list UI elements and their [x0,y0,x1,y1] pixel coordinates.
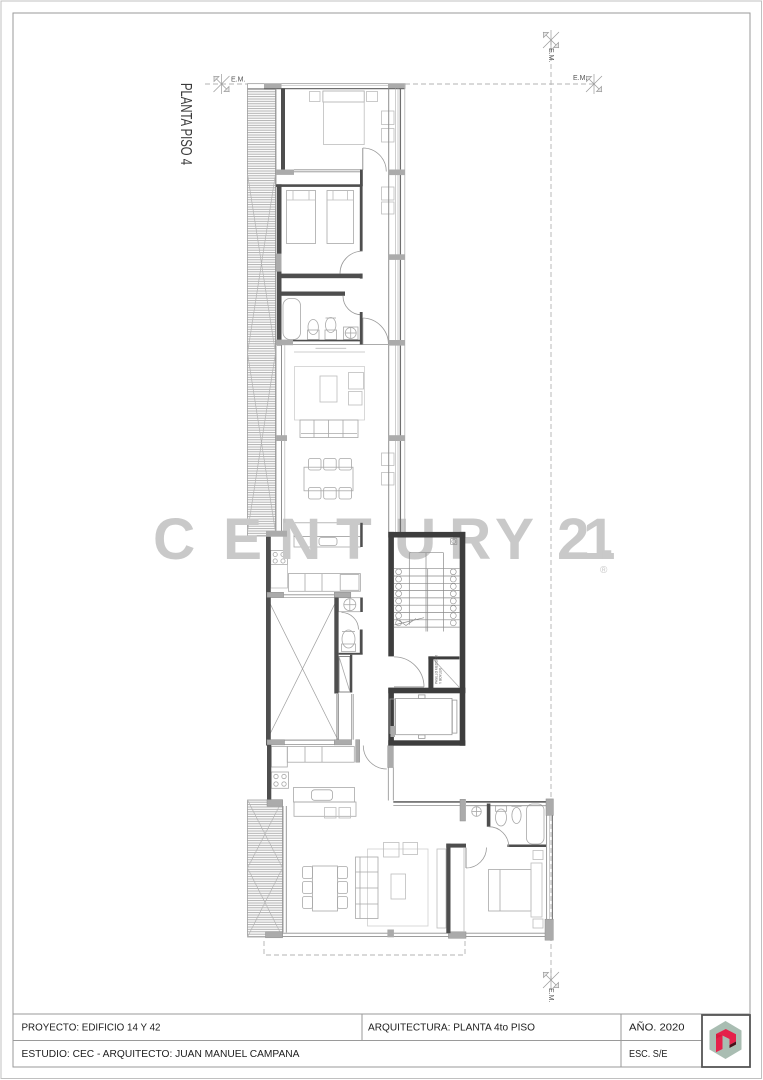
svg-text:E: E [223,507,262,572]
svg-text:PROYECTO: EDIFICIO 14 Y 42: PROYECTO: EDIFICIO 14 Y 42 [22,1022,161,1034]
svg-text:Y: Y [495,507,534,572]
svg-text:C: C [153,507,195,572]
svg-text:®: ® [600,565,608,576]
svg-text:N: N [279,507,321,572]
svg-text:ESTUDIO: CEC - ARQUITECTO: JUA: ESTUDIO: CEC - ARQUITECTO: JUAN MANUEL C… [22,1048,300,1060]
svg-text:.: . [599,507,615,572]
svg-text:PLANTA PISO 4: PLANTA PISO 4 [177,83,194,165]
svg-text:AÑO. 2020: AÑO. 2020 [629,1021,685,1034]
svg-text:E.M.: E.M. [547,988,554,1002]
svg-text:Y BOYLER: Y BOYLER [439,667,443,684]
svg-text:ESC. S/E: ESC. S/E [629,1048,668,1060]
svg-text:ARQUITECTURA: PLANTA 4to PISO: ARQUITECTURA: PLANTA 4to PISO [368,1022,535,1034]
svg-text:R: R [449,507,491,572]
svg-text:E.M.: E.M. [573,75,587,82]
svg-text:T: T [336,507,372,572]
svg-text:E.M.: E.M. [547,48,554,62]
svg-text:E.M.: E.M. [231,77,245,84]
